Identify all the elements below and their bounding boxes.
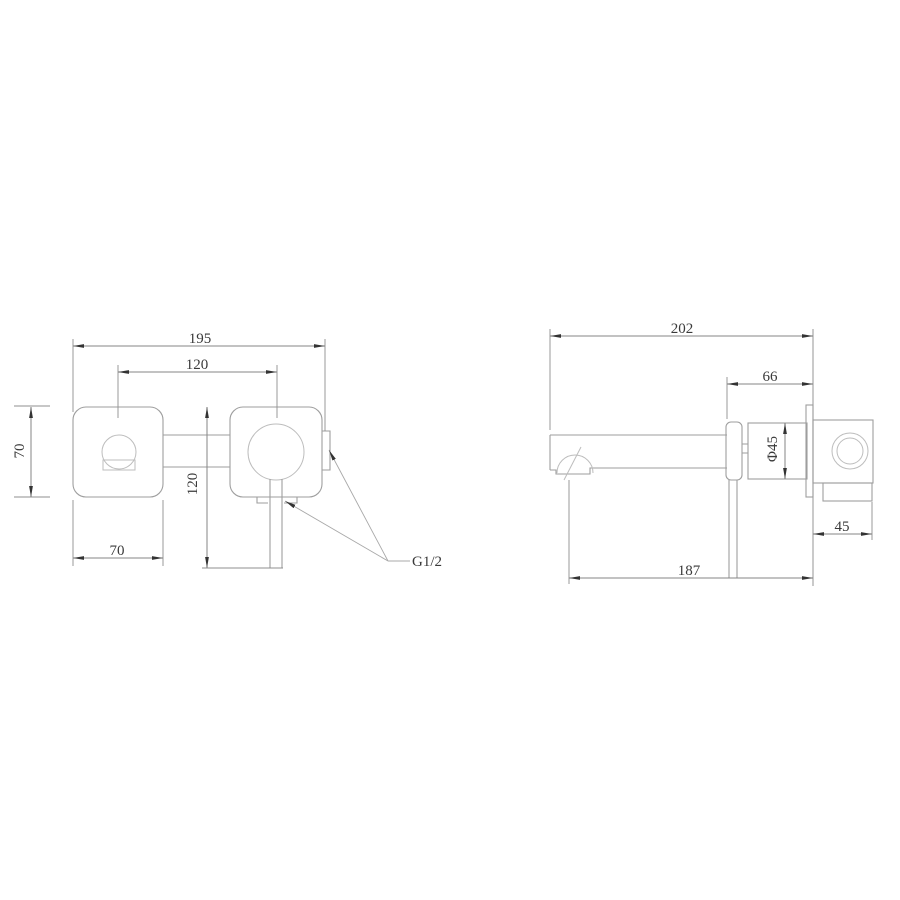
thread-size-label: G1/2 <box>412 554 442 570</box>
dim-label-inwall-depth: 45 <box>835 519 850 535</box>
bottom-connection-tab <box>257 497 297 503</box>
handle-base-circle <box>248 424 304 480</box>
dim-label-handle-offset: 66 <box>763 369 779 385</box>
spout-outlet-circle <box>102 435 136 469</box>
inwall-valve-box <box>813 420 873 483</box>
right-mounting-plate <box>230 407 322 497</box>
front-view: 195 120 70 70 120 G1/2 <box>12 331 442 570</box>
connecting-bar <box>163 435 230 467</box>
dim-label-overall-projection: 202 <box>671 321 694 337</box>
handle-lever-front <box>270 479 282 568</box>
handle-lever-bar-side <box>729 480 737 578</box>
side-view: 202 66 Φ45 45 187 <box>550 321 873 586</box>
handle-stem-ticks <box>742 444 748 453</box>
dim-label-plate-height: 70 <box>12 444 28 459</box>
handle-lever-head-side <box>726 422 742 480</box>
technical-drawing-page: 195 120 70 70 120 G1/2 <box>0 0 900 900</box>
ext-lines-195 <box>73 339 325 431</box>
dim-label-port-spacing: 120 <box>186 357 209 373</box>
leader-to-side-tab <box>329 450 388 561</box>
spout-outline <box>550 435 727 474</box>
cartridge-inner-circle <box>837 438 863 464</box>
left-mounting-plate <box>73 407 163 497</box>
faucet-dimension-drawing: 195 120 70 70 120 G1/2 <box>0 0 900 900</box>
inwall-outlet-box <box>823 483 872 501</box>
dim-label-body-diameter: Φ45 <box>765 436 781 462</box>
dim-label-spout-reach: 187 <box>678 563 701 579</box>
dim-label-overall-width: 195 <box>189 331 212 347</box>
dim-label-plate-width: 70 <box>110 543 125 559</box>
aerator-slash-line <box>564 447 581 480</box>
dim-label-handle-length: 120 <box>185 473 201 496</box>
